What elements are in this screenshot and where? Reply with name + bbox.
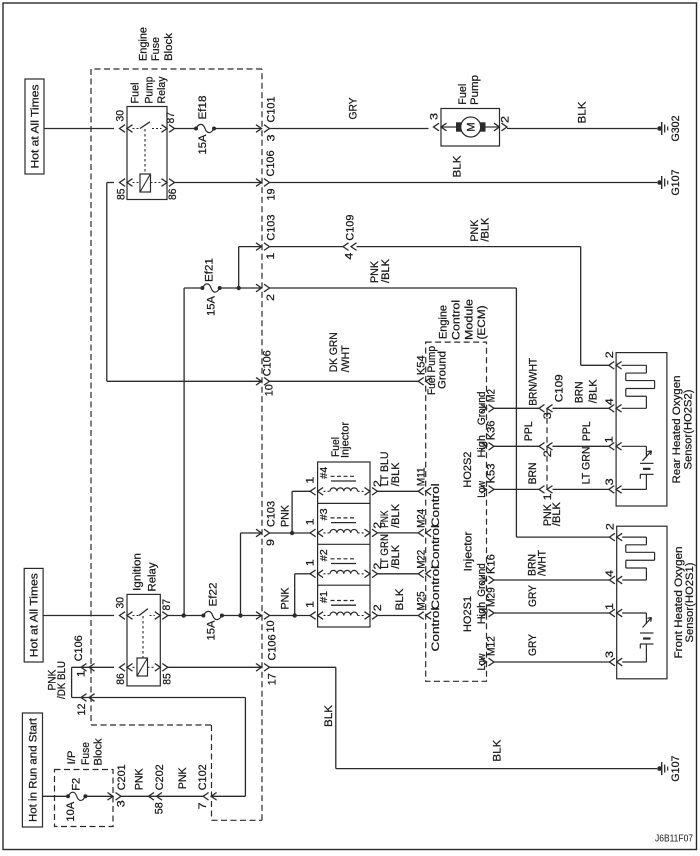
svg-text:17: 17 bbox=[267, 673, 279, 685]
svg-text:J6B11F07: J6B11F07 bbox=[655, 834, 693, 845]
svg-text:Ignition: Ignition bbox=[132, 553, 144, 591]
svg-text:/BLK: /BLK bbox=[390, 462, 402, 487]
svg-text:C102: C102 bbox=[197, 764, 209, 790]
svg-text:GRY: GRY bbox=[527, 633, 539, 656]
svg-text:High: High bbox=[476, 602, 488, 624]
svg-text:M: M bbox=[466, 122, 478, 131]
svg-text:C109: C109 bbox=[554, 374, 566, 402]
svg-text:(ECM): (ECM) bbox=[476, 306, 488, 340]
svg-text:3: 3 bbox=[266, 135, 278, 142]
svg-text:C101: C101 bbox=[266, 97, 278, 123]
svg-text:Relay: Relay bbox=[147, 562, 159, 592]
svg-text:10: 10 bbox=[265, 621, 277, 633]
svg-text:/BLK: /BLK bbox=[390, 503, 402, 528]
svg-text:M11: M11 bbox=[416, 467, 428, 486]
svg-text:1: 1 bbox=[265, 253, 277, 260]
svg-text:/BLK: /BLK bbox=[380, 258, 392, 283]
svg-text:3: 3 bbox=[604, 651, 616, 658]
svg-text:3: 3 bbox=[542, 412, 554, 419]
svg-text:7: 7 bbox=[197, 802, 209, 809]
svg-text:Control: Control bbox=[430, 525, 442, 569]
svg-text:Fuse: Fuse bbox=[80, 742, 92, 765]
svg-text:G302: G302 bbox=[670, 116, 682, 142]
svg-text:/WHT: /WHT bbox=[340, 345, 352, 372]
svg-text:Control: Control bbox=[451, 300, 463, 340]
svg-text:GRY: GRY bbox=[348, 97, 360, 120]
svg-text:Hot at All Times: Hot at All Times bbox=[30, 84, 42, 169]
svg-text:PNK: PNK bbox=[177, 767, 189, 790]
svg-text:Pump: Pump bbox=[469, 75, 481, 105]
svg-text:Hot at All Times: Hot at All Times bbox=[29, 573, 41, 658]
svg-text:HO2S1: HO2S1 bbox=[462, 596, 474, 632]
svg-text:Control: Control bbox=[430, 608, 442, 652]
svg-text:2: 2 bbox=[605, 523, 617, 530]
svg-text:/BLK: /BLK bbox=[551, 501, 563, 526]
svg-text:#3: #3 bbox=[318, 508, 330, 520]
svg-text:Low: Low bbox=[476, 654, 488, 671]
svg-text:85: 85 bbox=[115, 189, 127, 200]
svg-text:BLK: BLK bbox=[492, 739, 504, 762]
svg-text:C109: C109 bbox=[345, 215, 357, 241]
svg-text:#2: #2 bbox=[318, 549, 330, 561]
svg-text:10: 10 bbox=[264, 384, 276, 396]
svg-text:Module: Module bbox=[464, 299, 476, 340]
svg-text:1: 1 bbox=[305, 477, 317, 484]
svg-text:Ground: Ground bbox=[437, 351, 449, 389]
svg-text:1: 1 bbox=[542, 493, 554, 500]
svg-text:PPL: PPL bbox=[581, 421, 593, 441]
svg-text:3: 3 bbox=[116, 800, 128, 807]
svg-text:Ground: Ground bbox=[476, 391, 488, 425]
svg-text:3: 3 bbox=[604, 478, 616, 485]
svg-text:BRN: BRN bbox=[574, 381, 586, 403]
svg-text:Sensor(HO2S2): Sensor(HO2S2) bbox=[683, 390, 695, 470]
svg-text:2: 2 bbox=[372, 604, 384, 611]
svg-text:C202: C202 bbox=[154, 764, 166, 790]
svg-text:87: 87 bbox=[161, 599, 173, 610]
svg-text:2: 2 bbox=[265, 294, 277, 301]
svg-text:Fuel: Fuel bbox=[130, 83, 142, 104]
svg-text:9: 9 bbox=[265, 539, 277, 546]
svg-text:/BLK: /BLK bbox=[390, 544, 402, 569]
svg-text:BLK: BLK bbox=[576, 101, 588, 124]
svg-text:15A: 15A bbox=[197, 134, 209, 155]
svg-text:BLK: BLK bbox=[451, 155, 463, 178]
svg-text:19: 19 bbox=[266, 189, 278, 201]
svg-text:C103: C103 bbox=[266, 501, 278, 527]
svg-text:1: 1 bbox=[76, 670, 88, 677]
svg-text:Injector: Injector bbox=[463, 531, 475, 571]
svg-text:Low: Low bbox=[476, 481, 488, 498]
svg-text:30: 30 bbox=[114, 110, 126, 121]
svg-text:3: 3 bbox=[429, 113, 441, 120]
svg-text:87: 87 bbox=[165, 112, 177, 123]
svg-text:C103: C103 bbox=[266, 215, 278, 241]
svg-text:C106: C106 bbox=[262, 350, 274, 376]
svg-text:C201: C201 bbox=[116, 764, 128, 790]
svg-text:58: 58 bbox=[154, 802, 166, 814]
svg-text:M22: M22 bbox=[416, 550, 428, 569]
svg-text:C106: C106 bbox=[265, 151, 277, 177]
svg-text:86: 86 bbox=[115, 673, 127, 684]
svg-text:Fuel: Fuel bbox=[457, 84, 469, 105]
svg-text:Block: Block bbox=[163, 32, 175, 61]
svg-text:Hot in Run and Start: Hot in Run and Start bbox=[27, 718, 39, 822]
svg-text:High: High bbox=[476, 435, 488, 457]
svg-text:/BLK: /BLK bbox=[588, 379, 600, 404]
svg-text:Ef18: Ef18 bbox=[197, 96, 209, 120]
svg-text:#4: #4 bbox=[318, 467, 330, 479]
svg-text:15A: 15A bbox=[206, 295, 218, 316]
svg-text:4: 4 bbox=[344, 253, 356, 260]
svg-text:LT GRN: LT GRN bbox=[581, 446, 593, 484]
svg-text:86: 86 bbox=[167, 189, 179, 200]
svg-text:M25: M25 bbox=[416, 592, 428, 611]
svg-text:1: 1 bbox=[305, 518, 317, 525]
svg-text:4: 4 bbox=[604, 398, 616, 405]
svg-text:Control: Control bbox=[430, 483, 442, 527]
svg-text:1: 1 bbox=[305, 601, 317, 608]
svg-text:Rear Heated Oxygen: Rear Heated Oxygen bbox=[671, 376, 683, 484]
svg-text:Relay: Relay bbox=[156, 76, 168, 103]
svg-text:GRY: GRY bbox=[527, 584, 539, 607]
svg-text:2: 2 bbox=[542, 450, 554, 457]
svg-text:G107: G107 bbox=[670, 756, 682, 782]
svg-text:PNK: PNK bbox=[280, 504, 292, 527]
svg-text:/BLK: /BLK bbox=[480, 217, 492, 242]
svg-text:Control: Control bbox=[430, 566, 442, 610]
svg-text:30: 30 bbox=[114, 597, 126, 608]
svg-text:2: 2 bbox=[604, 351, 616, 358]
svg-text:C106: C106 bbox=[267, 635, 279, 661]
svg-text:HO2S2: HO2S2 bbox=[462, 452, 474, 488]
svg-text:M12: M12 bbox=[486, 636, 498, 656]
svg-text:K53: K53 bbox=[486, 464, 498, 484]
svg-text:Engine: Engine bbox=[438, 305, 450, 339]
svg-text:PNK: PNK bbox=[280, 587, 292, 610]
svg-text:PNK: PNK bbox=[134, 768, 146, 791]
svg-text:Ef21: Ef21 bbox=[204, 258, 216, 282]
svg-text:Fuse: Fuse bbox=[150, 37, 162, 61]
svg-text:Engine: Engine bbox=[138, 27, 150, 61]
svg-text:BRN: BRN bbox=[527, 462, 539, 484]
svg-text:Pump: Pump bbox=[144, 77, 156, 104]
svg-text:Ef22: Ef22 bbox=[208, 583, 220, 607]
svg-text:/WHT: /WHT bbox=[537, 550, 549, 576]
svg-text:15A: 15A bbox=[206, 620, 218, 641]
svg-text:F2: F2 bbox=[71, 778, 83, 791]
svg-text:Injector: Injector bbox=[340, 422, 352, 458]
svg-text:BLK: BLK bbox=[394, 588, 406, 611]
svg-text:DK GRN: DK GRN bbox=[328, 332, 340, 372]
svg-text:C106: C106 bbox=[73, 635, 85, 661]
svg-text:Block: Block bbox=[93, 738, 105, 765]
svg-text:#1: #1 bbox=[318, 591, 330, 603]
svg-text:BRN/WHT: BRN/WHT bbox=[528, 358, 540, 406]
svg-text:I/P: I/P bbox=[66, 751, 78, 765]
svg-text:BLK: BLK bbox=[323, 704, 335, 727]
svg-text:85: 85 bbox=[161, 673, 173, 684]
svg-text:2: 2 bbox=[499, 116, 511, 123]
svg-text:M24: M24 bbox=[416, 509, 428, 528]
svg-text:Sensor(HO2S1): Sensor(HO2S1) bbox=[684, 563, 696, 643]
svg-text:G107: G107 bbox=[670, 170, 682, 196]
svg-text:12: 12 bbox=[76, 704, 88, 716]
svg-text:PPL: PPL bbox=[523, 421, 535, 441]
svg-text:1: 1 bbox=[305, 559, 317, 566]
svg-text:/DK BLU: /DK BLU bbox=[56, 661, 68, 699]
svg-text:10A: 10A bbox=[65, 801, 77, 822]
